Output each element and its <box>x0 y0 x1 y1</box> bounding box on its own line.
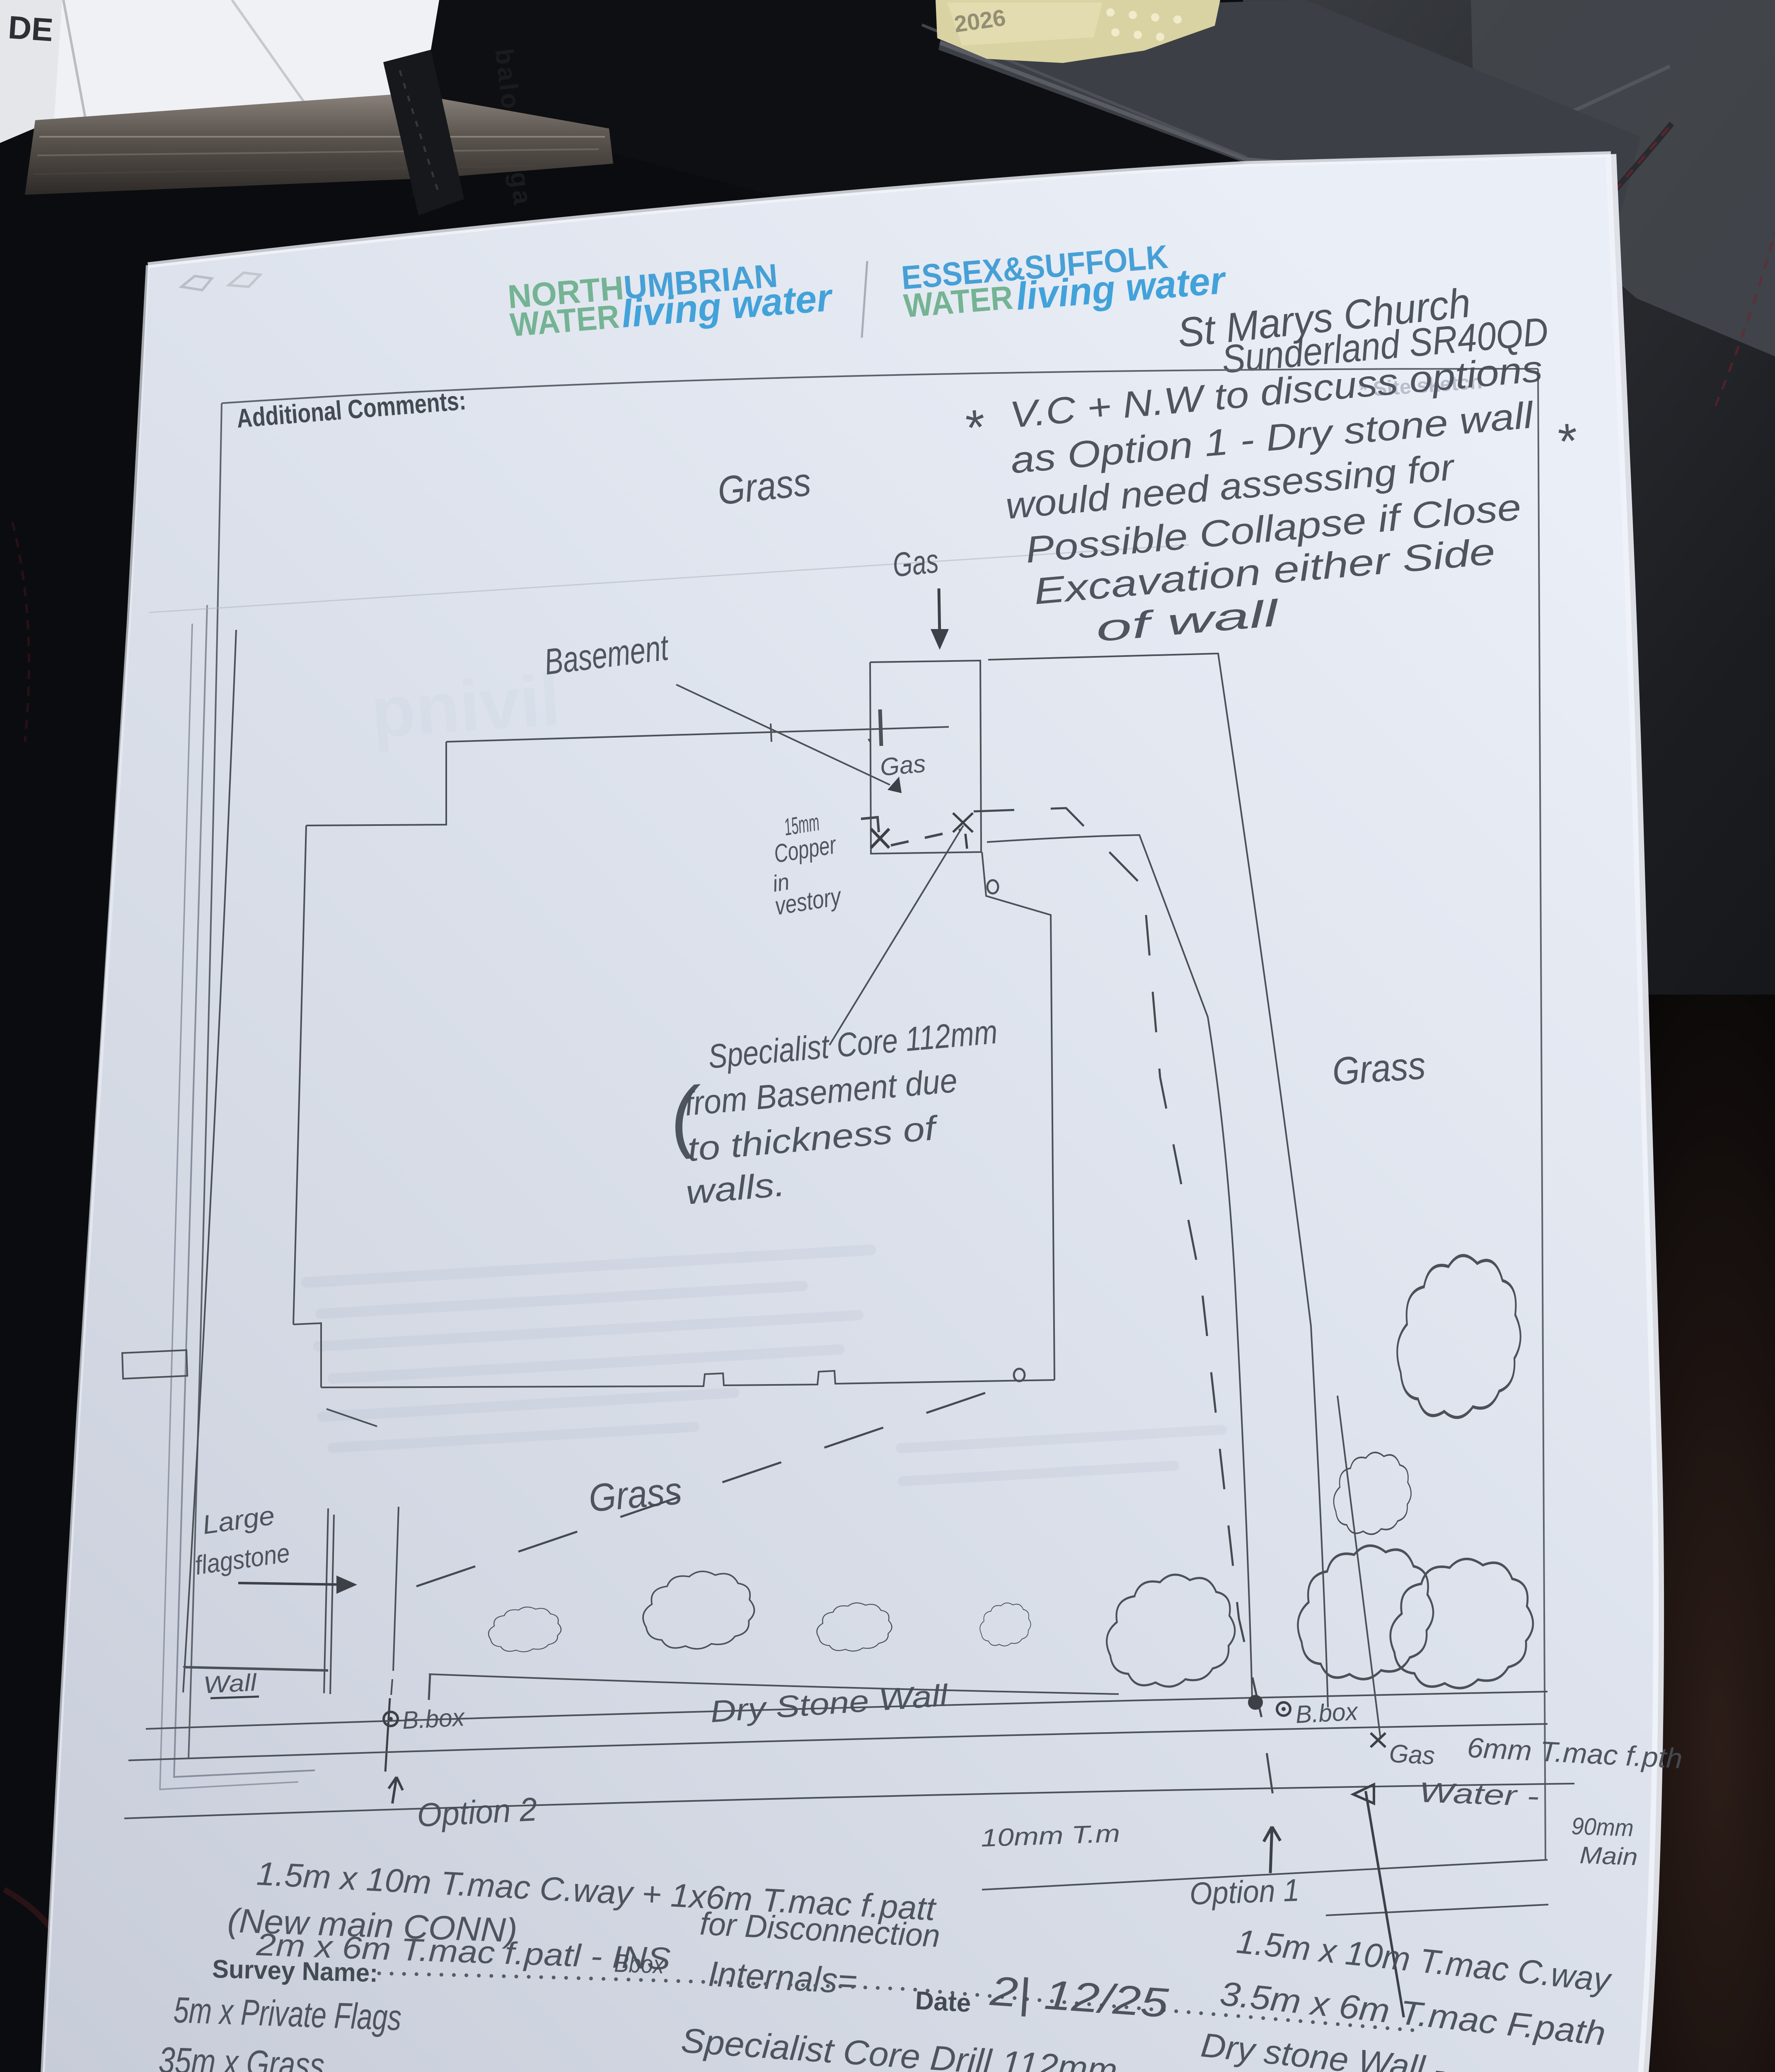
svg-text:B.box: B.box <box>1295 1697 1359 1728</box>
svg-text:Option 2: Option 2 <box>416 1791 538 1834</box>
svg-text:Wall: Wall <box>203 1669 258 1699</box>
svg-text:Gas: Gas <box>879 750 926 781</box>
svg-text:35m x Grass: 35m x Grass <box>158 2040 325 2072</box>
svg-text:Option 1: Option 1 <box>1189 1873 1300 1912</box>
svg-text:Internals=: Internals= <box>707 1954 858 2002</box>
svg-text:B.box: B.box <box>401 1703 466 1734</box>
svg-text:5m x Private Flags: 5m x Private Flags <box>173 1989 402 2038</box>
svg-text:90mm: 90mm <box>1571 1813 1634 1842</box>
svg-text:Main: Main <box>1579 1842 1638 1871</box>
svg-text:DE: DE <box>7 9 54 48</box>
svg-text:Bbox: Bbox <box>614 1949 665 1979</box>
svg-text:Grass: Grass <box>1331 1043 1427 1093</box>
svg-text:Water -: Water - <box>1418 1777 1539 1812</box>
svg-text:Gas: Gas <box>891 542 940 584</box>
svg-text:Gas: Gas <box>1388 1739 1435 1770</box>
svg-text:10mm T.m: 10mm T.m <box>980 1819 1120 1852</box>
svg-text:Survey Name:: Survey Name: <box>212 1955 378 1987</box>
svg-text:Date: Date <box>914 1986 972 2018</box>
